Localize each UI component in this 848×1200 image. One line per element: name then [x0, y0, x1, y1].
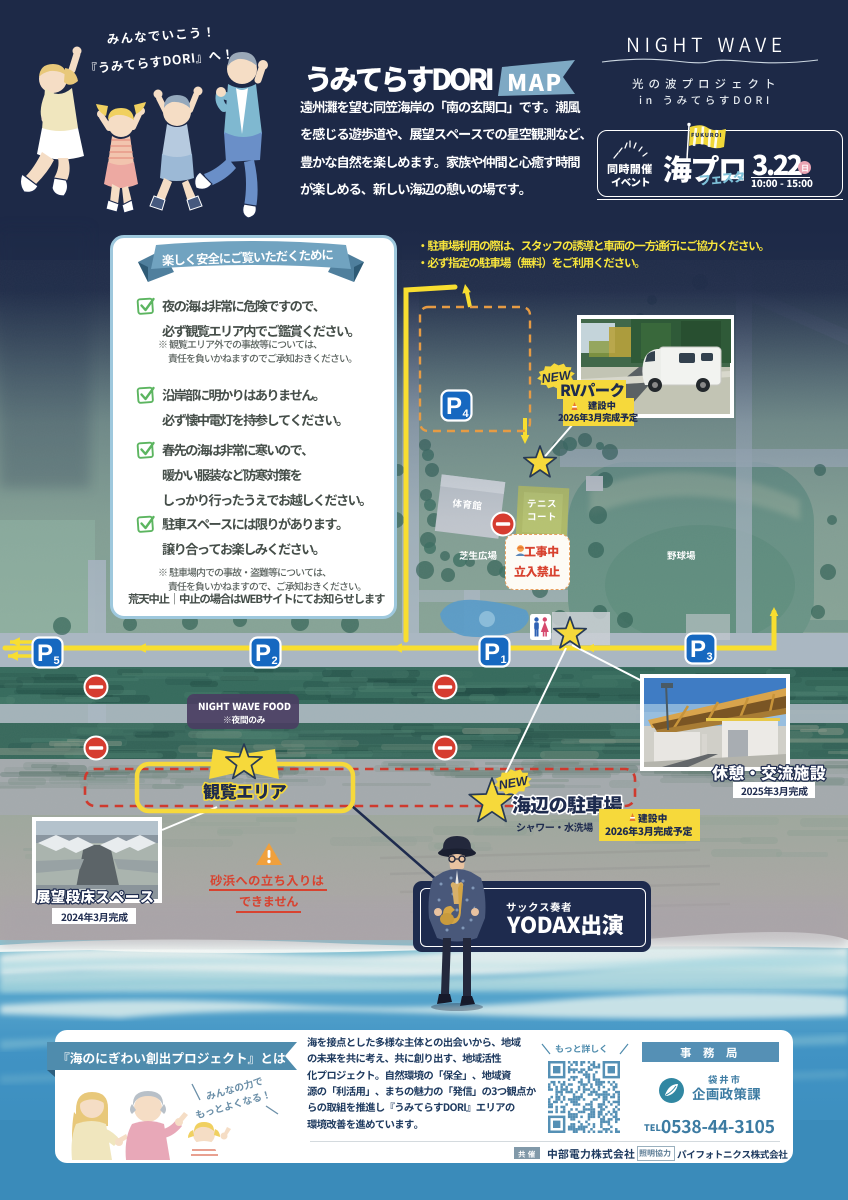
svg-text:P: P: [484, 639, 500, 666]
svg-text:5: 5: [53, 655, 59, 667]
svg-text:P: P: [446, 393, 462, 420]
svg-text:4: 4: [462, 408, 469, 420]
svg-text:P: P: [255, 640, 271, 667]
svg-text:2: 2: [271, 655, 277, 667]
svg-text:1: 1: [500, 654, 506, 666]
svg-text:3: 3: [706, 651, 712, 663]
svg-text:P: P: [690, 636, 706, 663]
svg-text:P: P: [37, 640, 53, 667]
